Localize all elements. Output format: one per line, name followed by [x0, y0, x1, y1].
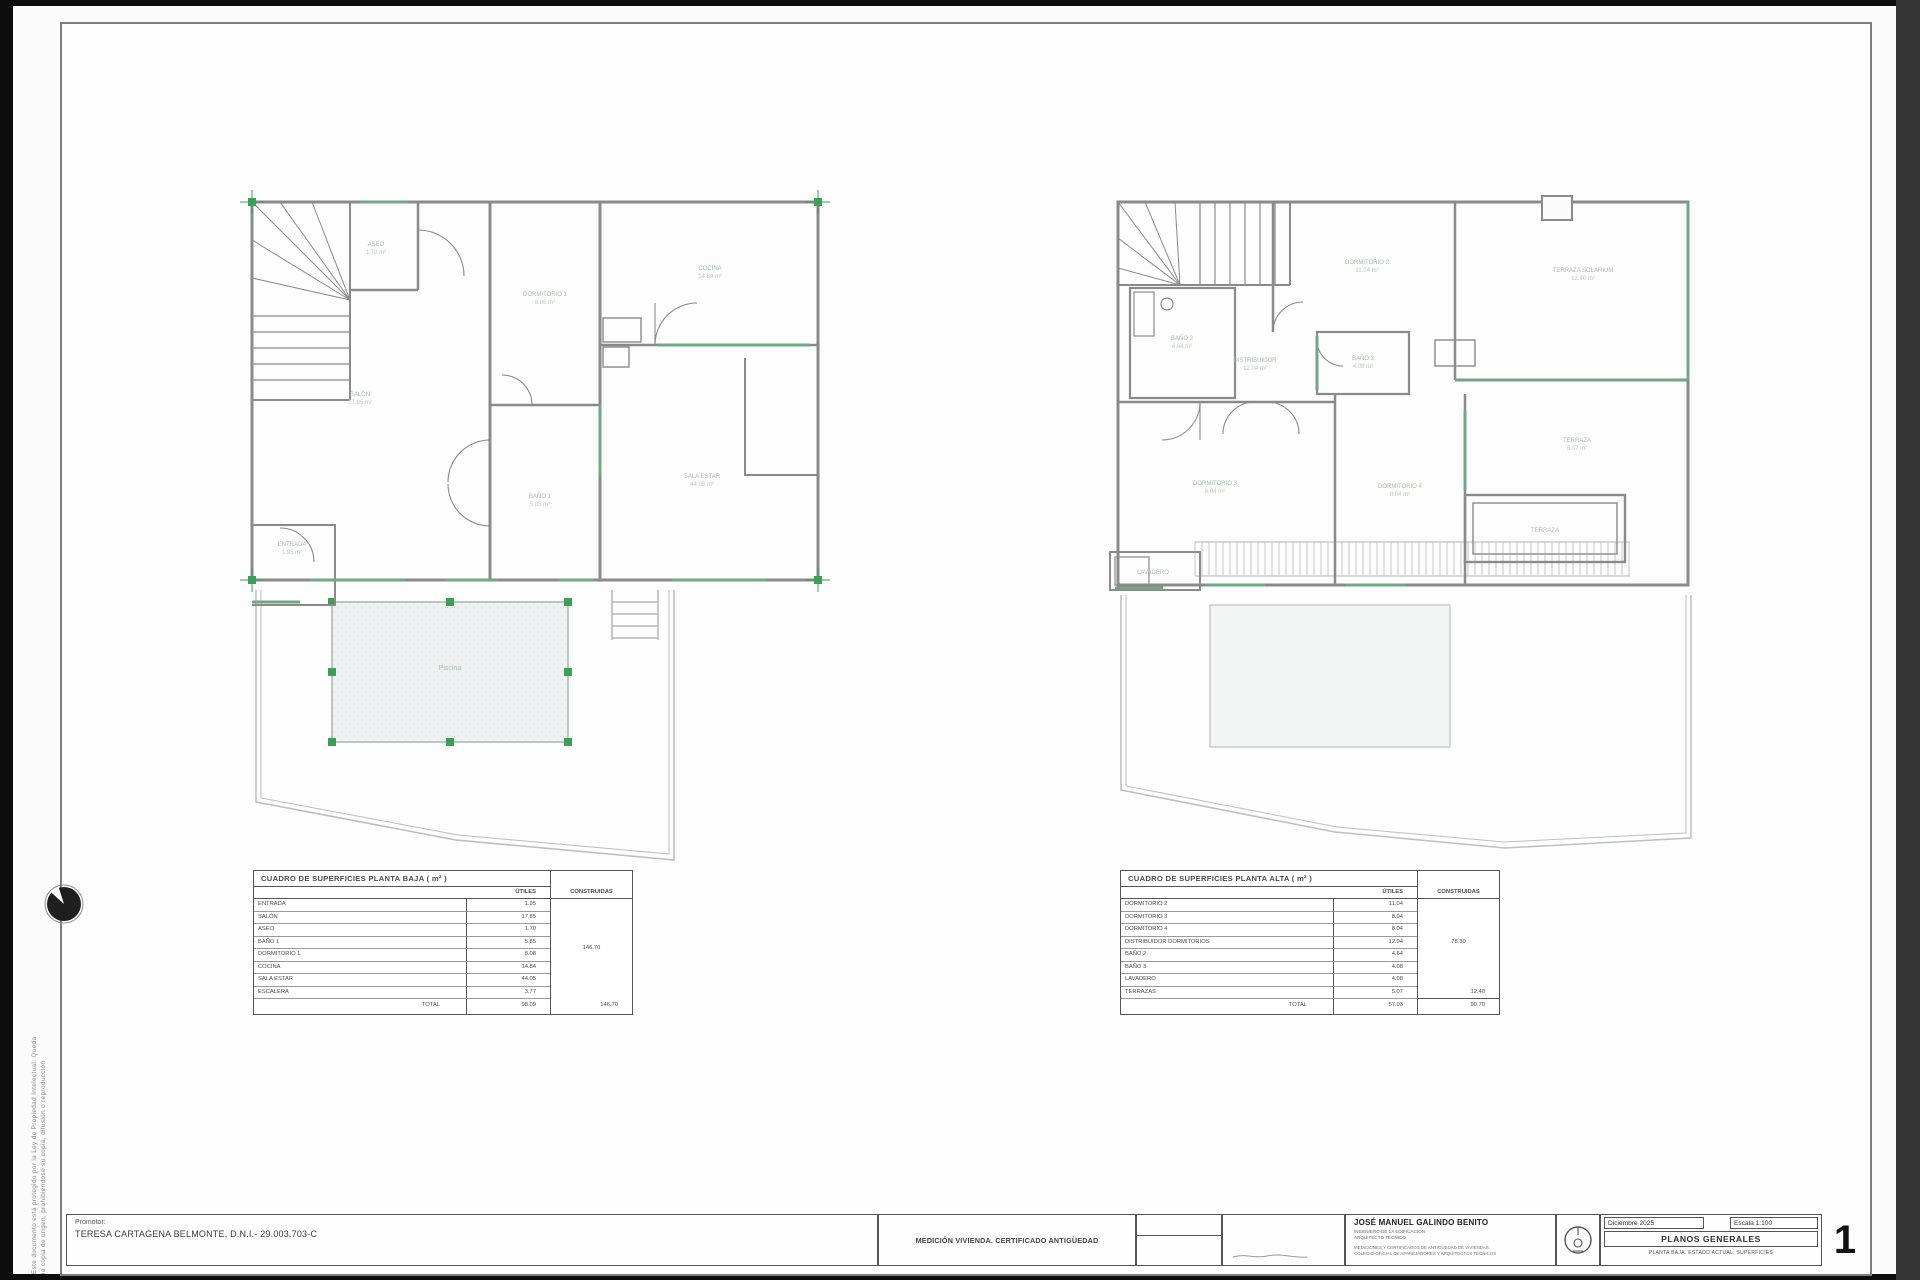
svg-text:8.04 m²: 8.04 m²	[1205, 489, 1225, 495]
tecnico-line1: INGENIERO DE LA EDIFICACIÓN	[1354, 1229, 1555, 1234]
svg-text:ENTRADA: ENTRADA	[278, 542, 307, 548]
table-cell: 14.84	[466, 962, 550, 975]
table-cell: DORMITORIO 1	[254, 949, 466, 962]
walls	[1110, 196, 1688, 590]
table-cell: 5.07	[1333, 987, 1417, 1000]
copyright-line-2: la copia de origen, prohibiéndose su cop…	[40, 692, 47, 1274]
table-cell: 90.70	[1417, 999, 1499, 1014]
table-cell: 3.77	[466, 987, 550, 1000]
sheet-subtitle: PLANTA BAJA. ESTADO ACTUAL. SUPERFICIES	[1604, 1250, 1818, 1256]
table-cell: DORMITORIO 4	[1121, 924, 1333, 937]
svg-text:DORMITORIO 1: DORMITORIO 1	[523, 292, 568, 298]
svg-text:17.85 m²: 17.85 m²	[348, 400, 372, 406]
pool: Piscina	[328, 598, 572, 746]
svg-text:COCINA: COCINA	[698, 266, 721, 272]
table-cell: 57.03	[1333, 999, 1417, 1014]
copyright-vertical-note: Este documento está protegido por la Ley…	[31, 692, 55, 1274]
floorplan-planta-baja: Piscina	[240, 190, 840, 880]
svg-text:11.04 m²: 11.04 m²	[1355, 268, 1378, 274]
svg-text:12.40 m²: 12.40 m²	[1571, 276, 1595, 282]
svg-text:TERRAZA SOLARIUM: TERRAZA SOLARIUM	[1553, 268, 1614, 274]
svg-text:5.85 m²: 5.85 m²	[530, 502, 550, 508]
svg-text:4.08 m²: 4.08 m²	[1353, 364, 1373, 370]
table-cell: CUADRO DE SUPERFICIES PLANTA ALTA ( m² )	[1121, 871, 1417, 887]
signature-scribble	[1223, 1215, 1343, 1263]
table-cell: 146.70	[550, 999, 632, 1014]
sheet-series: PLANOS GENERALES	[1604, 1231, 1818, 1247]
titleblock-tecnico: JOSÉ MANUEL GALINDO BENITO INGENIERO DE …	[1345, 1214, 1556, 1266]
svg-text:LAVADERO: LAVADERO	[1137, 570, 1169, 576]
table-cell: 8.08	[466, 949, 550, 962]
table-cell: BAÑO 3	[1121, 962, 1333, 975]
svg-text:1.70 m²: 1.70 m²	[366, 250, 386, 256]
svg-text:8.04 m²: 8.04 m²	[1390, 492, 1410, 498]
svg-text:DISTRIBUIDOR: DISTRIBUIDOR	[1233, 358, 1277, 364]
studio-logo	[40, 876, 84, 930]
viewer-stage: Piscina	[0, 0, 1920, 1280]
table-cell: DORMITORIO 2	[1121, 899, 1333, 912]
table-cell: ENTRADA	[254, 899, 466, 912]
table-cell	[254, 887, 466, 899]
scrollbar-track[interactable]	[1896, 0, 1920, 1280]
table-cell: SALA ESTAR	[254, 974, 466, 987]
table-cell: 1.95	[466, 899, 550, 912]
titleblock-info: Diciembre 2025 Escala 1:100 PLANOS GENER…	[1600, 1214, 1822, 1266]
table-cell: 4.64	[1333, 949, 1417, 962]
promotor-name: TERESA CARTAGENA BELMONTE, D.N.I.- 29.00…	[75, 1229, 877, 1239]
room-labels: BAÑO 24.64 m² DISTRIBUIDOR12.04 m² DORMI…	[1137, 260, 1613, 576]
table-cell: 11.04	[1333, 899, 1417, 912]
table-cell: 8.04	[1333, 924, 1417, 937]
table-cell: TERRAZAS	[1121, 987, 1333, 1000]
stamp-icon	[1561, 1221, 1595, 1259]
table-cell: 8.04	[1333, 912, 1417, 925]
tecnico-name: JOSÉ MANUEL GALINDO BENITO	[1354, 1218, 1555, 1227]
table-cell: CONSTRUIDAS	[550, 871, 632, 899]
svg-text:8.08 m²: 8.08 m²	[535, 300, 555, 306]
table-cell: TOTAL	[254, 999, 466, 1014]
table-cell: BAÑO 1	[254, 937, 466, 950]
table-cell: TOTAL	[1121, 999, 1333, 1014]
table-cell: 1.70	[466, 924, 550, 937]
table-cell: SALÓN	[254, 912, 466, 925]
table-cell: ÚTILES	[466, 887, 550, 899]
svg-text:TERRAZA: TERRAZA	[1531, 528, 1559, 534]
project-title: MEDICIÓN VIVIENDA. CERTIFICADO ANTIGÜEDA…	[916, 1236, 1099, 1245]
table-cell: LAVADERO	[1121, 974, 1333, 987]
sheet-scale: Escala 1:100	[1730, 1217, 1818, 1229]
table-cell: DORMITORIO 3	[1121, 912, 1333, 925]
table-cell: CONSTRUIDAS	[1417, 871, 1499, 899]
walls	[252, 202, 818, 605]
table-cell: 98.09	[466, 999, 550, 1014]
table-cell: 146.70	[550, 899, 632, 999]
svg-text:14.84 m²: 14.84 m²	[698, 274, 722, 280]
table-cell: CUADRO DE SUPERFICIES PLANTA BAJA ( m² )	[254, 871, 550, 887]
svg-text:44.05 m²: 44.05 m²	[690, 482, 714, 488]
exterior-steps	[612, 590, 658, 640]
pool-label: Piscina	[439, 665, 462, 672]
corner-markers[interactable]	[240, 190, 830, 592]
svg-text:1.95 m²: 1.95 m²	[282, 550, 302, 556]
copyright-line-1: Este documento está protegido por la Ley…	[31, 692, 38, 1274]
svg-text:DORMITORIO 2: DORMITORIO 2	[1345, 260, 1390, 266]
titleblock-aux-cells	[1136, 1214, 1222, 1266]
table-cell: 5.85	[466, 937, 550, 950]
tecnico-line4: COLEGIO OFICIAL DE APAREJADORES Y ARQUIT…	[1354, 1251, 1555, 1256]
svg-text:BAÑO 1: BAÑO 1	[529, 493, 552, 500]
table-cell: 4.08	[1333, 974, 1417, 987]
svg-text:5.07 m²: 5.07 m²	[1567, 446, 1587, 452]
svg-text:SALÓN: SALÓN	[350, 391, 370, 398]
table-cell: 12.04	[1333, 937, 1417, 950]
table-cell: 78.30	[1417, 899, 1499, 987]
svg-text:BAÑO 3: BAÑO 3	[1352, 355, 1375, 362]
svg-text:TERRAZA: TERRAZA	[1563, 438, 1591, 444]
titleblock-promotor: Promotor: TERESA CARTAGENA BELMONTE, D.N…	[66, 1214, 878, 1266]
titleblock-signature-box	[1222, 1214, 1345, 1266]
table-cell: 12.40	[1417, 987, 1499, 1000]
table-cell: 17.85	[466, 912, 550, 925]
svg-text:12.04 m²: 12.04 m²	[1243, 366, 1267, 372]
table-cell: ASEO	[254, 924, 466, 937]
table-cell: ESCALERA	[254, 987, 466, 1000]
titleblock-project: MEDICIÓN VIVIENDA. CERTIFICADO ANTIGÜEDA…	[878, 1214, 1136, 1266]
table-cell: 4.08	[1333, 962, 1417, 975]
promotor-label: Promotor:	[75, 1219, 877, 1226]
svg-text:DORMITORIO 4: DORMITORIO 4	[1378, 484, 1423, 490]
table-cell: COCINA	[254, 962, 466, 975]
svg-text:BAÑO 2: BAÑO 2	[1171, 335, 1194, 342]
pool-outline	[1210, 605, 1450, 747]
sheet-date: Diciembre 2025	[1604, 1217, 1704, 1229]
table-cell: ÚTILES	[1333, 887, 1417, 899]
svg-text:SALA ESTAR: SALA ESTAR	[684, 474, 721, 480]
tecnico-line3: MEDICIONES Y CERTIFICADOS DE ANTIGÜEDAD …	[1354, 1245, 1555, 1250]
titleblock-stamp	[1556, 1214, 1600, 1266]
railing-hatch	[1195, 542, 1630, 576]
table-cell: 44.05	[466, 974, 550, 987]
table-cell	[1121, 887, 1333, 899]
surface-table-planta-alta: CUADRO DE SUPERFICIES PLANTA ALTA ( m² )…	[1120, 870, 1500, 1015]
floorplan-planta-alta: BAÑO 24.64 m² DISTRIBUIDOR12.04 m² DORMI…	[1105, 190, 1705, 880]
svg-text:DORMITORIO 3: DORMITORIO 3	[1193, 481, 1238, 487]
svg-text:4.64 m²: 4.64 m²	[1172, 344, 1192, 350]
table-cell: BAÑO 2	[1121, 949, 1333, 962]
table-cell: DISTRIBUIDOR DORMITORIOS	[1121, 937, 1333, 950]
sheet-number: 1	[1822, 1214, 1868, 1266]
surface-table-planta-baja: CUADRO DE SUPERFICIES PLANTA BAJA ( m² )…	[253, 870, 633, 1015]
svg-text:ASEO: ASEO	[368, 242, 385, 248]
